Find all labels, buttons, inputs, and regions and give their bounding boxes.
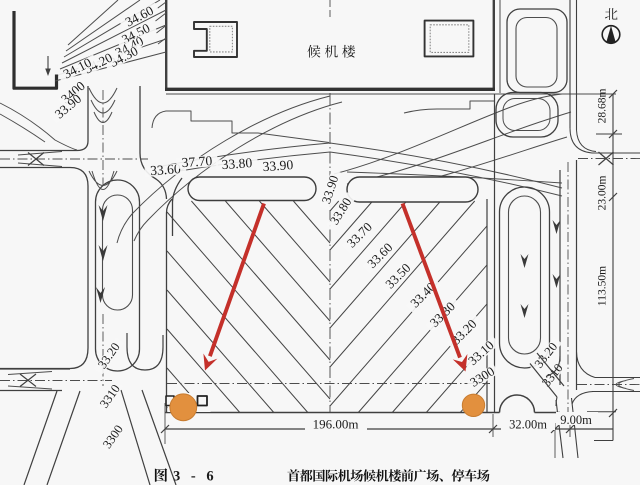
svg-text:3 - 6: 3 - 6 xyxy=(173,469,217,485)
svg-text:196.00m: 196.00m xyxy=(313,417,359,432)
svg-text:32.00m: 32.00m xyxy=(509,418,547,432)
svg-text:33.90: 33.90 xyxy=(262,157,294,174)
svg-text:28.68m: 28.68m xyxy=(597,89,609,124)
svg-text:113.50m: 113.50m xyxy=(597,266,609,306)
svg-text:9.00m: 9.00m xyxy=(560,413,592,427)
svg-text:37.70: 37.70 xyxy=(181,153,213,170)
svg-text:23.00m: 23.00m xyxy=(597,176,609,211)
svg-text:33.80: 33.80 xyxy=(221,155,253,172)
